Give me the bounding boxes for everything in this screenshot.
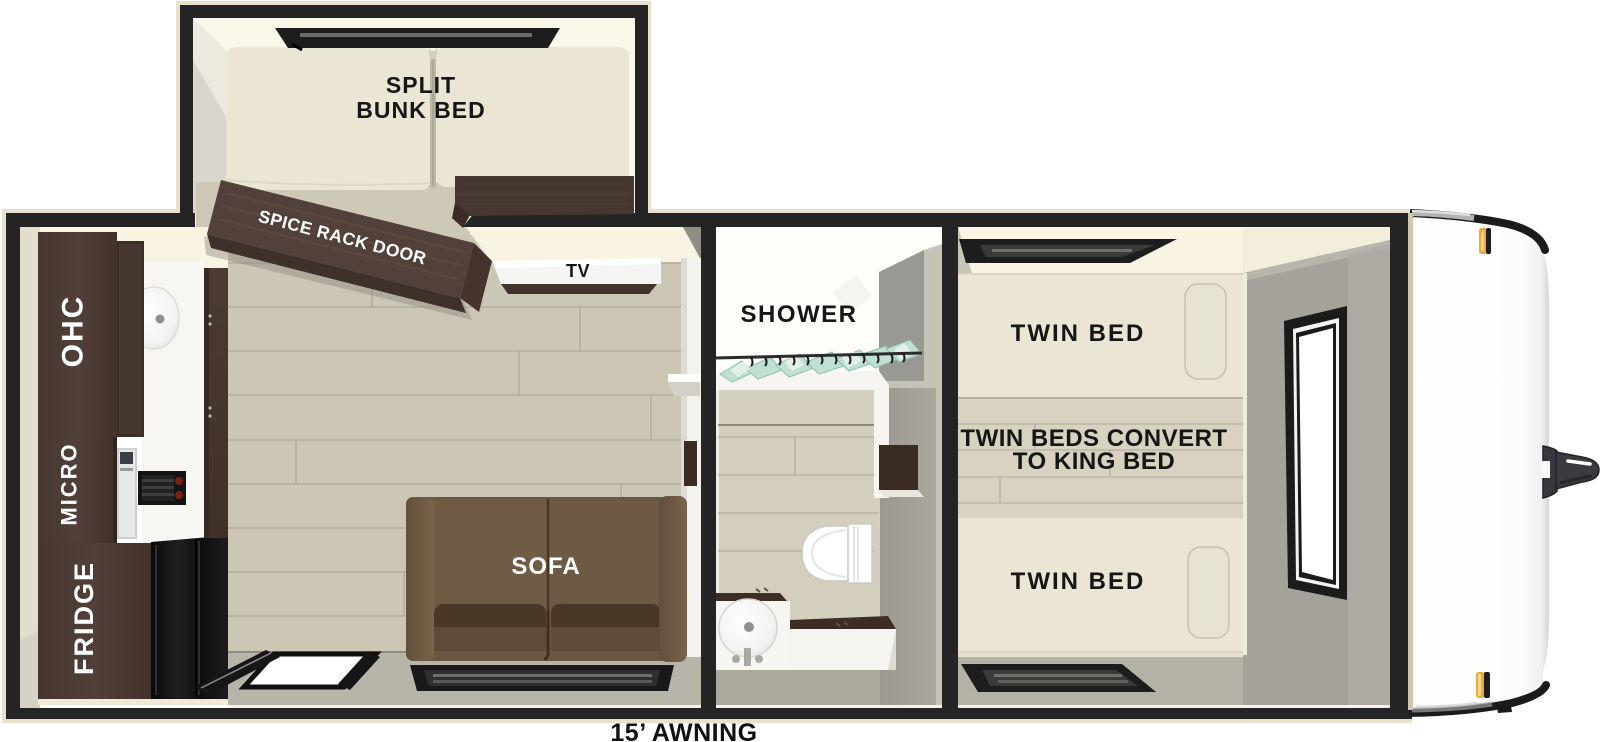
svg-text:TWIN BED: TWIN BED [1011,320,1146,347]
svg-text:TV: TV [566,261,590,281]
svg-text:SOFA: SOFA [511,553,580,580]
svg-text:SPLIT: SPLIT [386,72,456,98]
svg-text:BUNK BED: BUNK BED [356,97,485,123]
svg-text:MICRO: MICRO [57,442,82,525]
svg-text:FRIDGE: FRIDGE [69,561,99,675]
svg-text:OHC: OHC [57,295,90,368]
svg-text:TO KING BED: TO KING BED [1013,448,1175,475]
svg-text:15’ AWNING: 15’ AWNING [610,719,757,742]
svg-text:TWIN BED: TWIN BED [1011,568,1146,595]
svg-text:SHOWER: SHOWER [741,301,858,328]
